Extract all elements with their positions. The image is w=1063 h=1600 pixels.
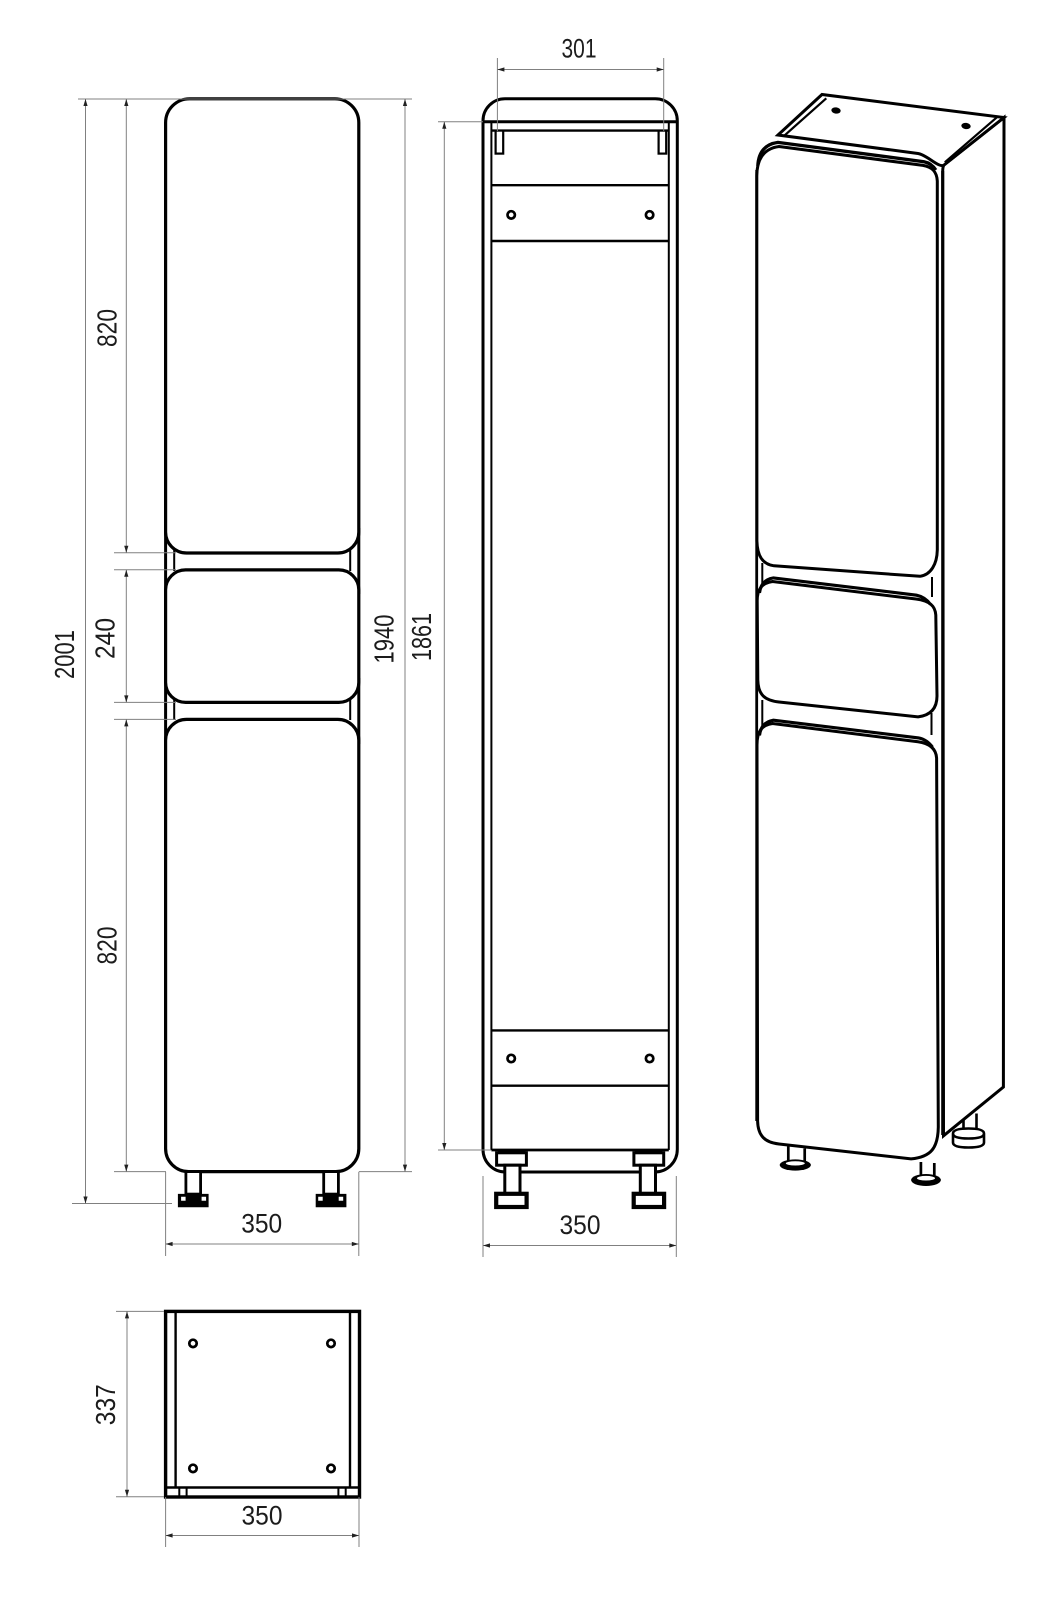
svg-text:2001: 2001 — [49, 630, 80, 679]
svg-text:350: 350 — [560, 1210, 601, 1240]
svg-text:350: 350 — [242, 1501, 283, 1531]
svg-text:337: 337 — [90, 1384, 121, 1425]
svg-text:240: 240 — [90, 618, 121, 659]
svg-text:1940: 1940 — [369, 615, 400, 664]
svg-text:350: 350 — [241, 1209, 282, 1239]
svg-text:301: 301 — [562, 34, 597, 64]
svg-text:820: 820 — [92, 309, 123, 347]
svg-text:1861: 1861 — [406, 613, 437, 661]
svg-text:820: 820 — [92, 927, 123, 965]
